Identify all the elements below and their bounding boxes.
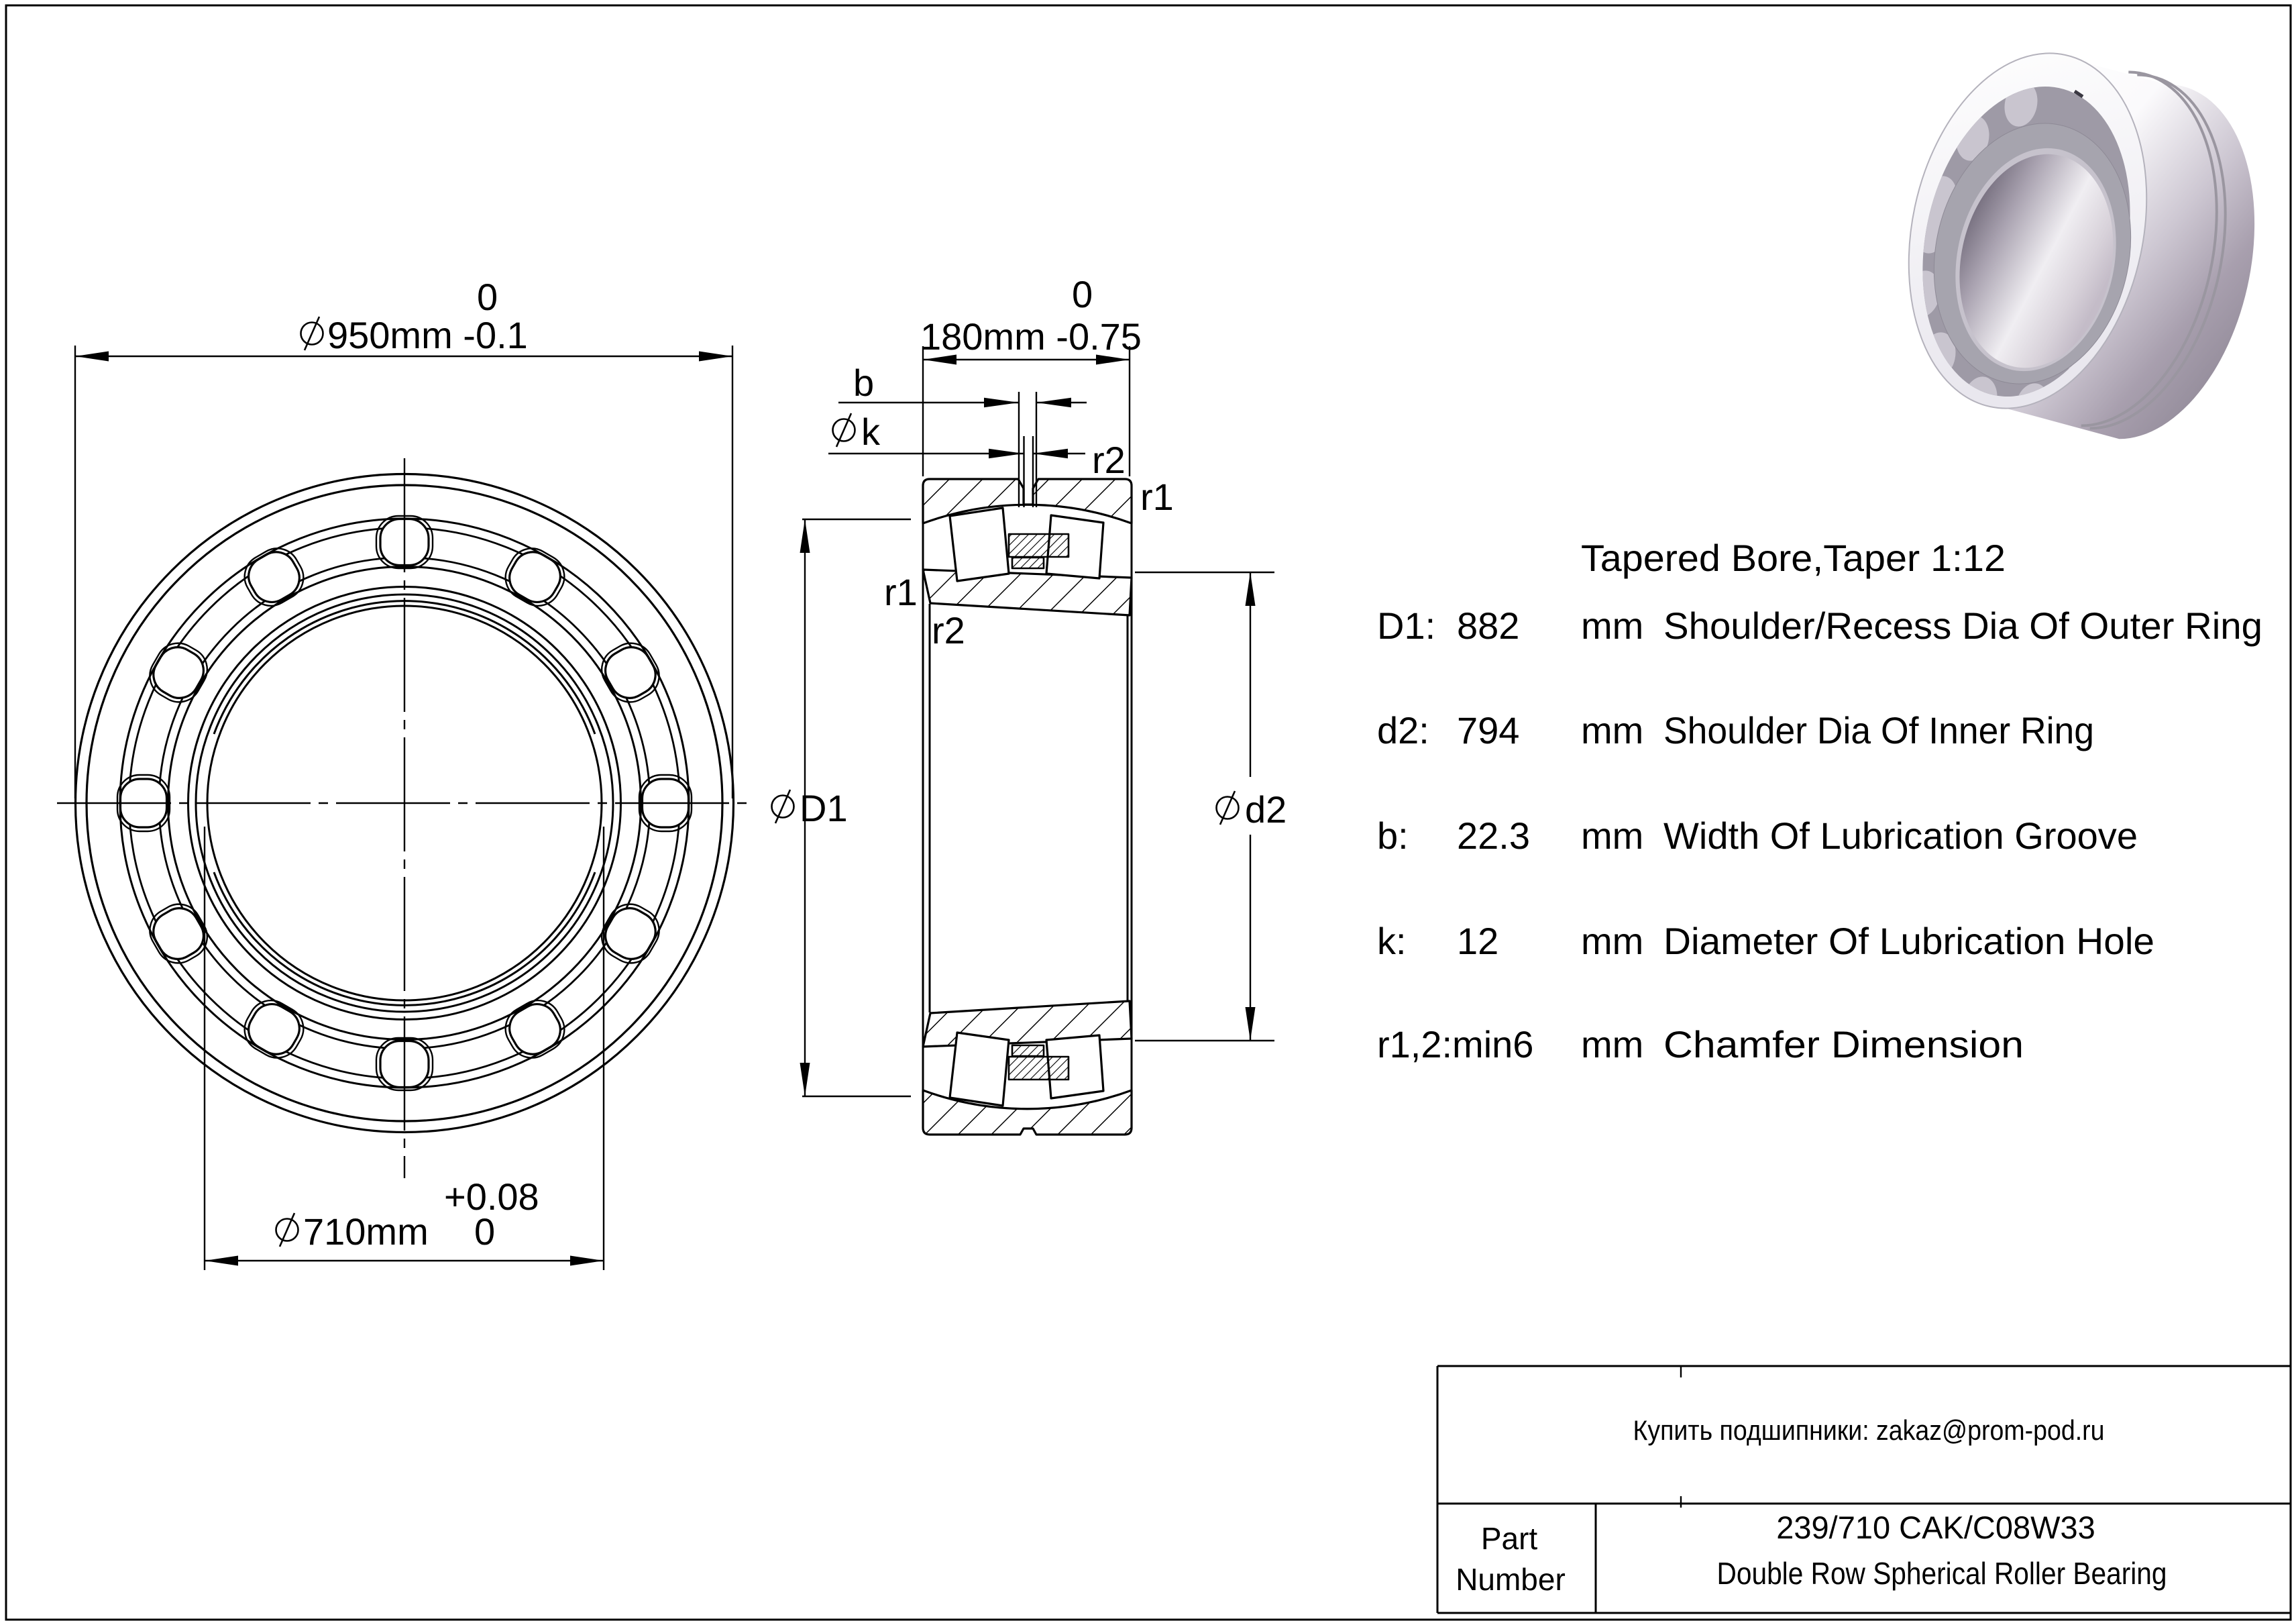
svg-text:k: k	[861, 411, 881, 453]
svg-text:180mm -0.75: 180mm -0.75	[920, 315, 1142, 358]
svg-text:d2: d2	[1245, 788, 1287, 831]
svg-text:mm: mm	[1581, 605, 1643, 647]
svg-text:k:: k:	[1377, 920, 1407, 962]
svg-text:710mm: 710mm	[303, 1210, 429, 1253]
svg-text:950mm -0.1: 950mm -0.1	[327, 314, 528, 356]
svg-text:r2: r2	[1092, 439, 1126, 481]
svg-text:0: 0	[1072, 273, 1093, 315]
svg-text:22.3: 22.3	[1457, 815, 1530, 857]
svg-text:b:: b:	[1377, 815, 1409, 857]
svg-text:b: b	[853, 362, 874, 404]
svg-text:882: 882	[1457, 605, 1519, 647]
svg-text:Chamfer Dimension: Chamfer Dimension	[1663, 1023, 2024, 1065]
svg-text:Part: Part	[1481, 1521, 1538, 1556]
svg-text:r1,2:min6: r1,2:min6	[1377, 1023, 1533, 1065]
svg-text:Width Of Lubrication Groove: Width Of Lubrication Groove	[1663, 815, 2138, 857]
svg-text:Number: Number	[1456, 1562, 1566, 1597]
svg-text:0: 0	[474, 1210, 495, 1253]
svg-text:mm: mm	[1581, 1023, 1643, 1065]
svg-text:r1: r1	[884, 571, 918, 613]
svg-text:Tapered Bore,Taper 1:12: Tapered Bore,Taper 1:12	[1581, 537, 2006, 579]
svg-text:Купить подшипники: zakaz@prom-: Купить подшипники: zakaz@prom-pod.ru	[1633, 1414, 2105, 1446]
svg-text:Shoulder/Recess Dia Of Outer R: Shoulder/Recess Dia Of Outer Ring	[1663, 605, 2262, 647]
svg-text:r2: r2	[932, 609, 965, 651]
svg-text:Double Row Spherical Roller Be: Double Row Spherical Roller Bearing	[1717, 1556, 2167, 1591]
svg-text:239/710 CAK/C08W33: 239/710 CAK/C08W33	[1776, 1510, 2095, 1545]
svg-text:0: 0	[477, 276, 498, 318]
svg-text:D1: D1	[800, 787, 848, 829]
svg-text:mm: mm	[1581, 709, 1643, 751]
svg-text:d2:: d2:	[1377, 709, 1429, 751]
svg-text:D1:: D1:	[1377, 605, 1435, 647]
svg-text:794: 794	[1457, 709, 1519, 751]
svg-text:mm: mm	[1581, 815, 1643, 857]
svg-text:Diameter Of Lubrication Hole: Diameter Of Lubrication Hole	[1663, 920, 2154, 962]
svg-text:r1: r1	[1140, 476, 1174, 518]
svg-text:mm: mm	[1581, 920, 1643, 962]
svg-text:Shoulder Dia Of Inner Ring: Shoulder Dia Of Inner Ring	[1663, 709, 2094, 751]
svg-text:12: 12	[1457, 920, 1498, 962]
